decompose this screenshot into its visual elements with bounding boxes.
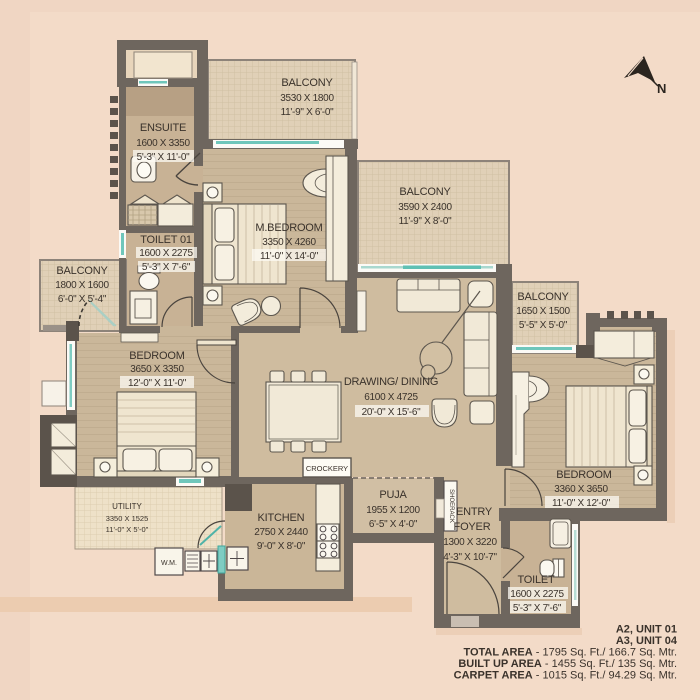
svg-text:BALCONY: BALCONY [517, 291, 569, 303]
svg-text:5'-3" X 7'-6": 5'-3" X 7'-6" [513, 603, 562, 614]
svg-text:5'-3" X 7'-6": 5'-3" X 7'-6" [142, 262, 191, 273]
svg-text:CARPET AREA - 1015 Sq. Ft./ 94: CARPET AREA - 1015 Sq. Ft./ 94.29 Sq. Mt… [454, 670, 677, 682]
svg-text:4'-3" X 10'-7": 4'-3" X 10'-7" [443, 552, 497, 563]
svg-text:1600 X 2275: 1600 X 2275 [510, 589, 564, 600]
svg-text:ENTRY: ENTRY [456, 506, 493, 518]
svg-text:6'-5" X 4'-0": 6'-5" X 4'-0" [369, 519, 418, 530]
svg-text:6100 X 4725: 6100 X 4725 [364, 392, 418, 403]
svg-text:N: N [657, 81, 666, 96]
svg-text:1955 X 1200: 1955 X 1200 [366, 505, 420, 516]
svg-text:3650 X 3350: 3650 X 3350 [130, 364, 184, 375]
svg-text:5'-5" X 5'-0": 5'-5" X 5'-0" [519, 320, 568, 331]
svg-text:11'-0" X 5'-0": 11'-0" X 5'-0" [106, 525, 149, 534]
svg-text:A3, UNIT 04: A3, UNIT 04 [616, 635, 678, 647]
svg-text:BUILT UP AREA - 1455 Sq. Ft./: BUILT UP AREA - 1455 Sq. Ft./ 135 Sq. Mt… [458, 658, 677, 670]
svg-text:BALCONY: BALCONY [56, 265, 108, 277]
svg-text:FOYER: FOYER [454, 521, 491, 533]
svg-text:1800 X 1600: 1800 X 1600 [55, 280, 109, 291]
svg-text:TOTAL AREA - 1795 Sq. Ft./ 166: TOTAL AREA - 1795 Sq. Ft./ 166.7 Sq. Mtr… [463, 647, 677, 659]
svg-text:DRAWING/ DINING: DRAWING/ DINING [344, 376, 438, 388]
svg-text:9'-0" X 8'-0": 9'-0" X 8'-0" [257, 541, 306, 552]
svg-text:3530 X 1800: 3530 X 1800 [280, 93, 334, 104]
svg-text:UTILITY: UTILITY [112, 502, 142, 511]
svg-text:12'-0" X 11'-0": 12'-0" X 11'-0" [128, 378, 187, 389]
svg-text:3350 X 4260: 3350 X 4260 [262, 237, 316, 248]
svg-text:1600 X 2275: 1600 X 2275 [139, 248, 193, 259]
svg-text:6'-0" X 5'-4": 6'-0" X 5'-4" [58, 294, 107, 305]
svg-text:3360 X 3650: 3360 X 3650 [554, 484, 608, 495]
svg-text:2750 X 2440: 2750 X 2440 [254, 527, 308, 538]
svg-text:ENSUITE: ENSUITE [140, 122, 186, 134]
svg-text:BALCONY: BALCONY [399, 186, 451, 198]
svg-text:BALCONY: BALCONY [281, 77, 333, 89]
svg-text:BEDROOM: BEDROOM [129, 350, 184, 362]
svg-text:BEDROOM: BEDROOM [556, 469, 611, 481]
svg-text:TOILET: TOILET [517, 574, 555, 586]
svg-text:11'-0" X 12'-0": 11'-0" X 12'-0" [552, 498, 611, 509]
svg-text:20'-0" X 15'-6": 20'-0" X 15'-6" [362, 407, 421, 418]
svg-text:W.M.: W.M. [161, 560, 177, 567]
svg-text:11'-9" X 8'-0": 11'-9" X 8'-0" [399, 216, 452, 227]
svg-text:A2, UNIT 01: A2, UNIT 01 [616, 624, 677, 636]
svg-text:11'-9" X 6'-0": 11'-9" X 6'-0" [281, 107, 334, 118]
svg-text:M.BEDROOM: M.BEDROOM [255, 222, 322, 234]
svg-text:3350 X 1525: 3350 X 1525 [106, 514, 149, 523]
svg-text:11'-0" X 14'-0": 11'-0" X 14'-0" [260, 251, 319, 262]
svg-text:3590 X 2400: 3590 X 2400 [398, 202, 452, 213]
svg-text:TOILET 01: TOILET 01 [140, 234, 192, 246]
svg-text:CROCKERY: CROCKERY [306, 464, 348, 473]
svg-text:1650 X 1500: 1650 X 1500 [516, 306, 570, 317]
svg-text:5'-3" X 11'-0": 5'-3" X 11'-0" [137, 152, 190, 163]
svg-text:PUJA: PUJA [379, 489, 407, 501]
svg-text:KITCHEN: KITCHEN [258, 512, 305, 524]
svg-text:1300 X 3220: 1300 X 3220 [443, 537, 497, 548]
svg-text:1600 X 3350: 1600 X 3350 [136, 138, 190, 149]
svg-text:SHOERACK: SHOERACK [448, 489, 454, 523]
